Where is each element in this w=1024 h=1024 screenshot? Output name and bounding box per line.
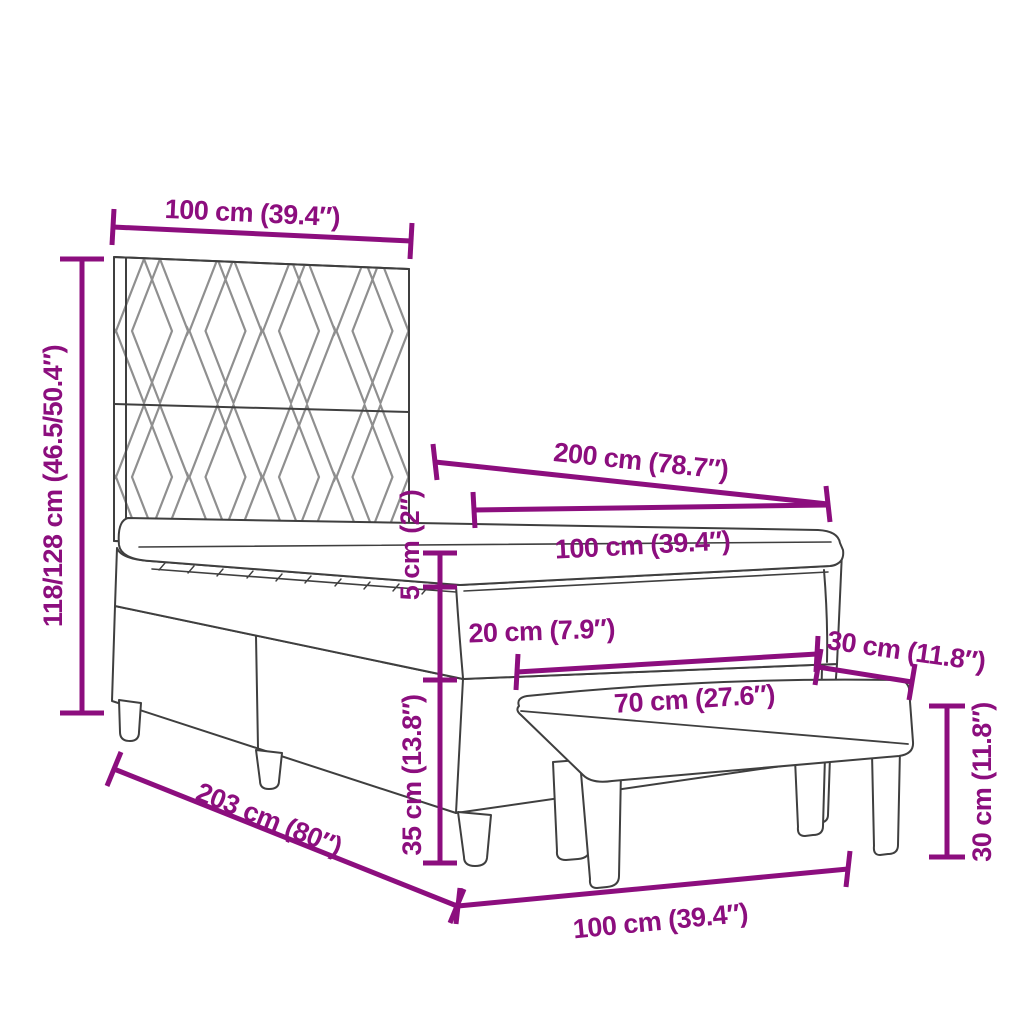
label-base-height: 35 cm (13.8″): [397, 694, 427, 855]
bench-leg: [872, 749, 900, 855]
bed-leg: [119, 700, 141, 741]
bench-leg: [795, 756, 825, 836]
label-bench-depth: 30 cm (11.8″): [825, 625, 987, 677]
bench-leg: [581, 770, 621, 888]
diagram-canvas: 100 cm (39.4″) 118/128 cm (46.5/50.4″) 2…: [0, 0, 1024, 1024]
dimension-diagram: 100 cm (39.4″) 118/128 cm (46.5/50.4″) 2…: [0, 0, 1024, 1024]
label-total-height: 118/128 cm (46.5/50.4″): [38, 345, 68, 627]
label-mattress-height: 20 cm (7.9″): [468, 613, 615, 648]
label-bench-height: 30 cm (11.8″): [967, 702, 997, 862]
headboard-diamond-pattern: [114, 257, 409, 549]
label-base-width: 100 cm (39.4″): [572, 898, 750, 945]
label-headboard-width: 100 cm (39.4″): [164, 194, 341, 232]
dim-bench-height-line: [929, 706, 965, 857]
bed-leg: [458, 812, 491, 866]
bed-leg: [256, 750, 282, 789]
headboard: [114, 257, 409, 549]
label-topper-height: 5 cm (2″): [395, 490, 425, 600]
